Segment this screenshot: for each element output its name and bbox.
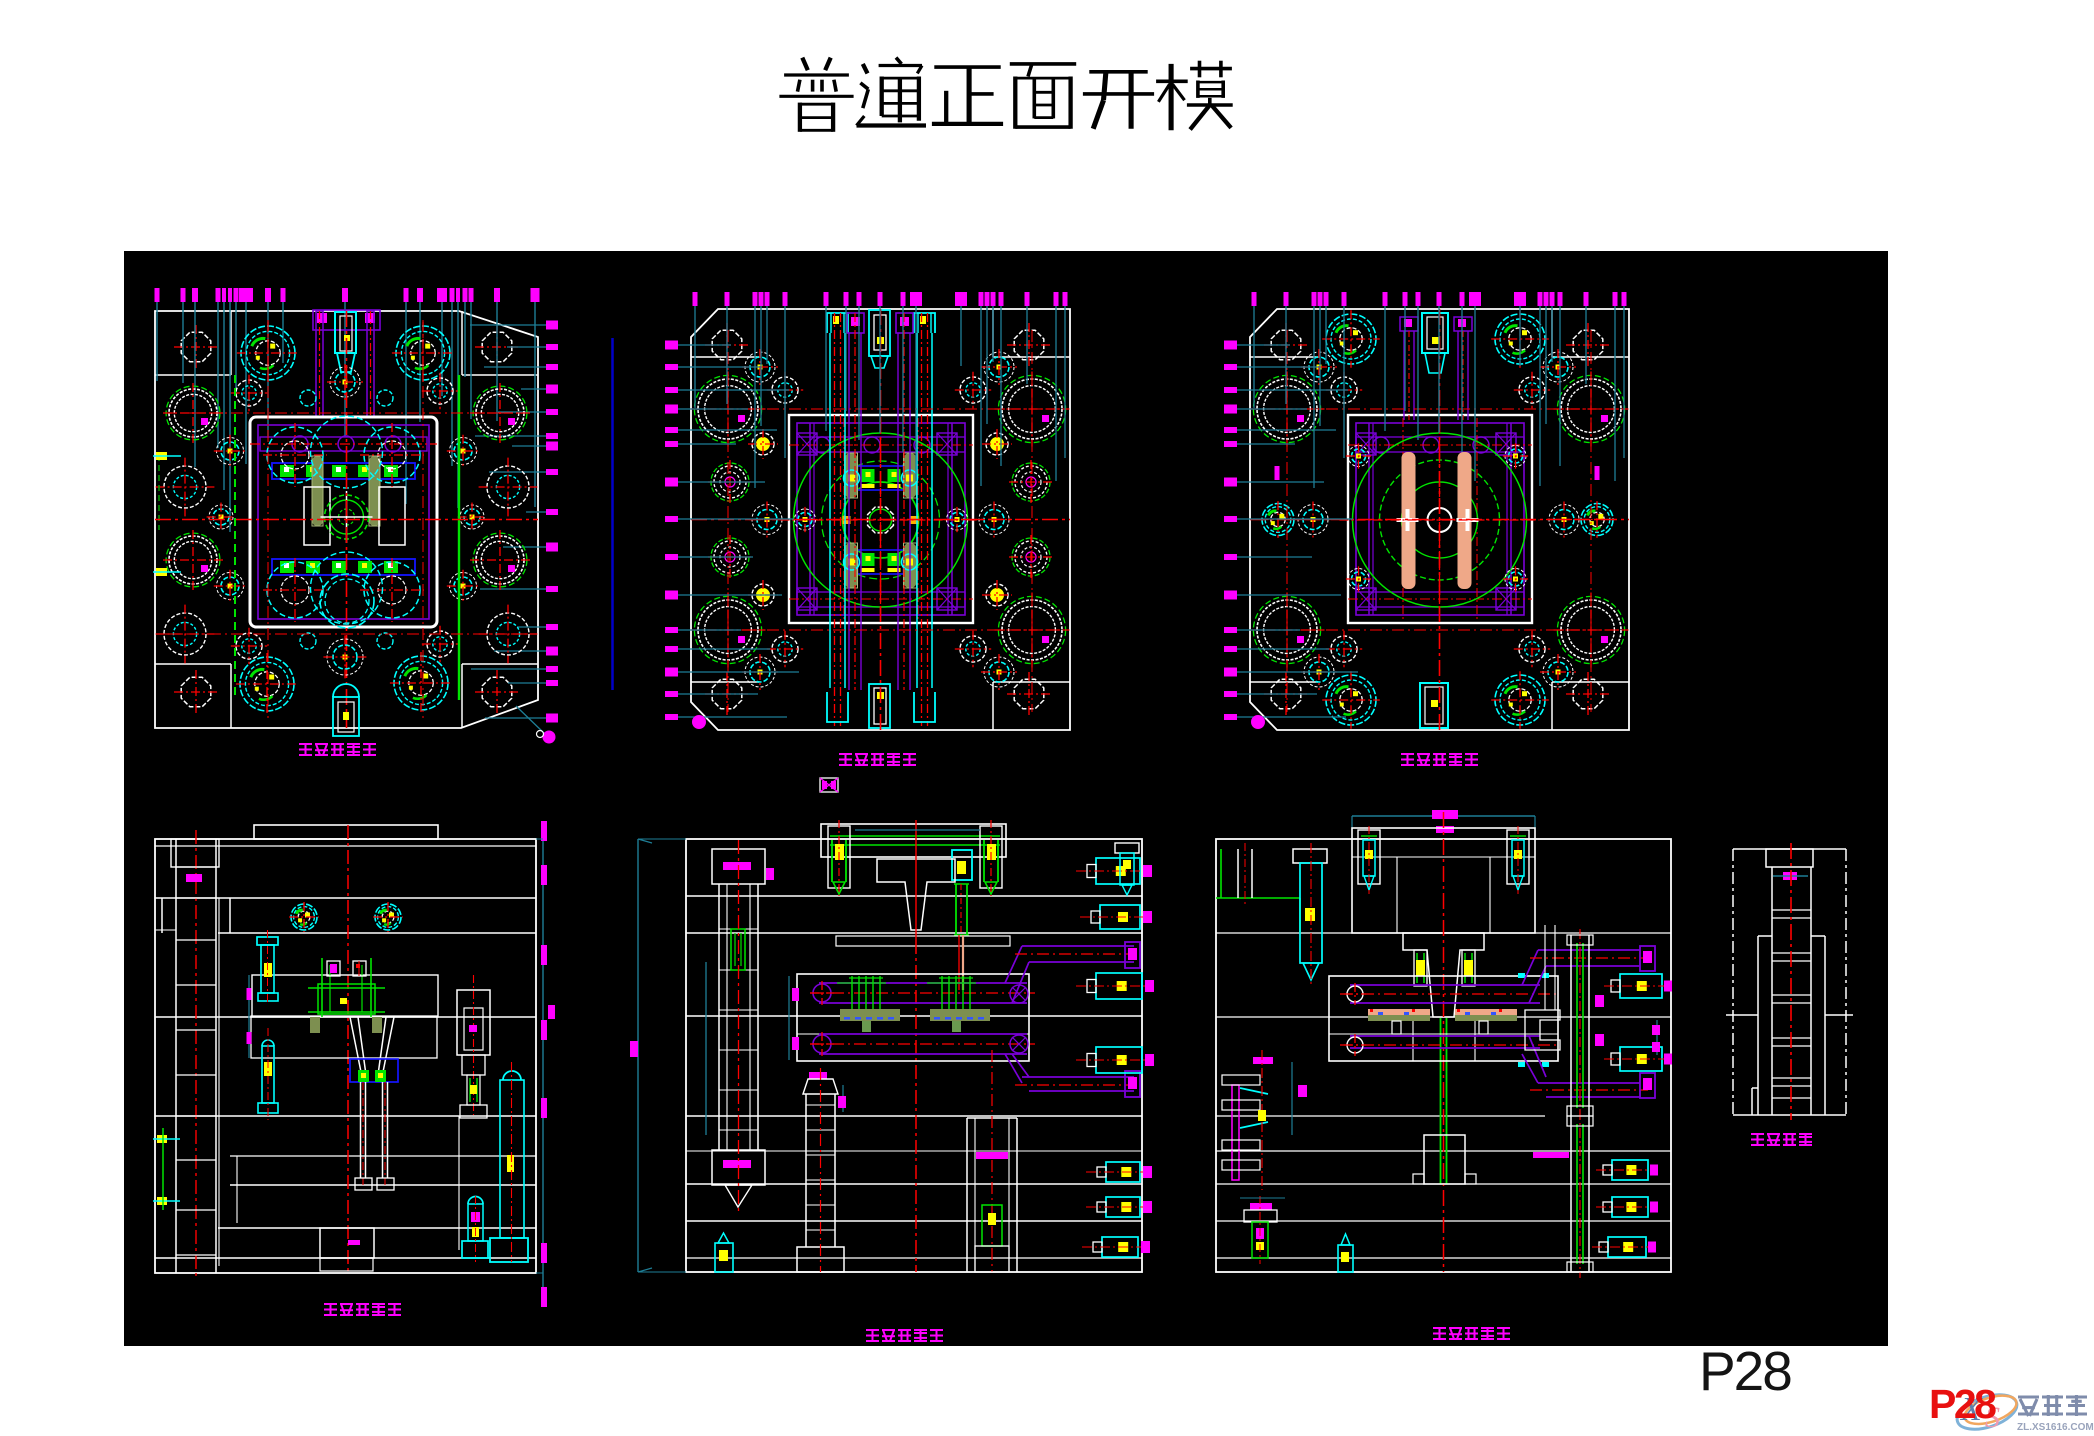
svg-text:P28: P28: [1929, 1381, 1996, 1427]
svg-text:ZL.XS1616.COM: ZL.XS1616.COM: [2017, 1422, 2094, 1433]
